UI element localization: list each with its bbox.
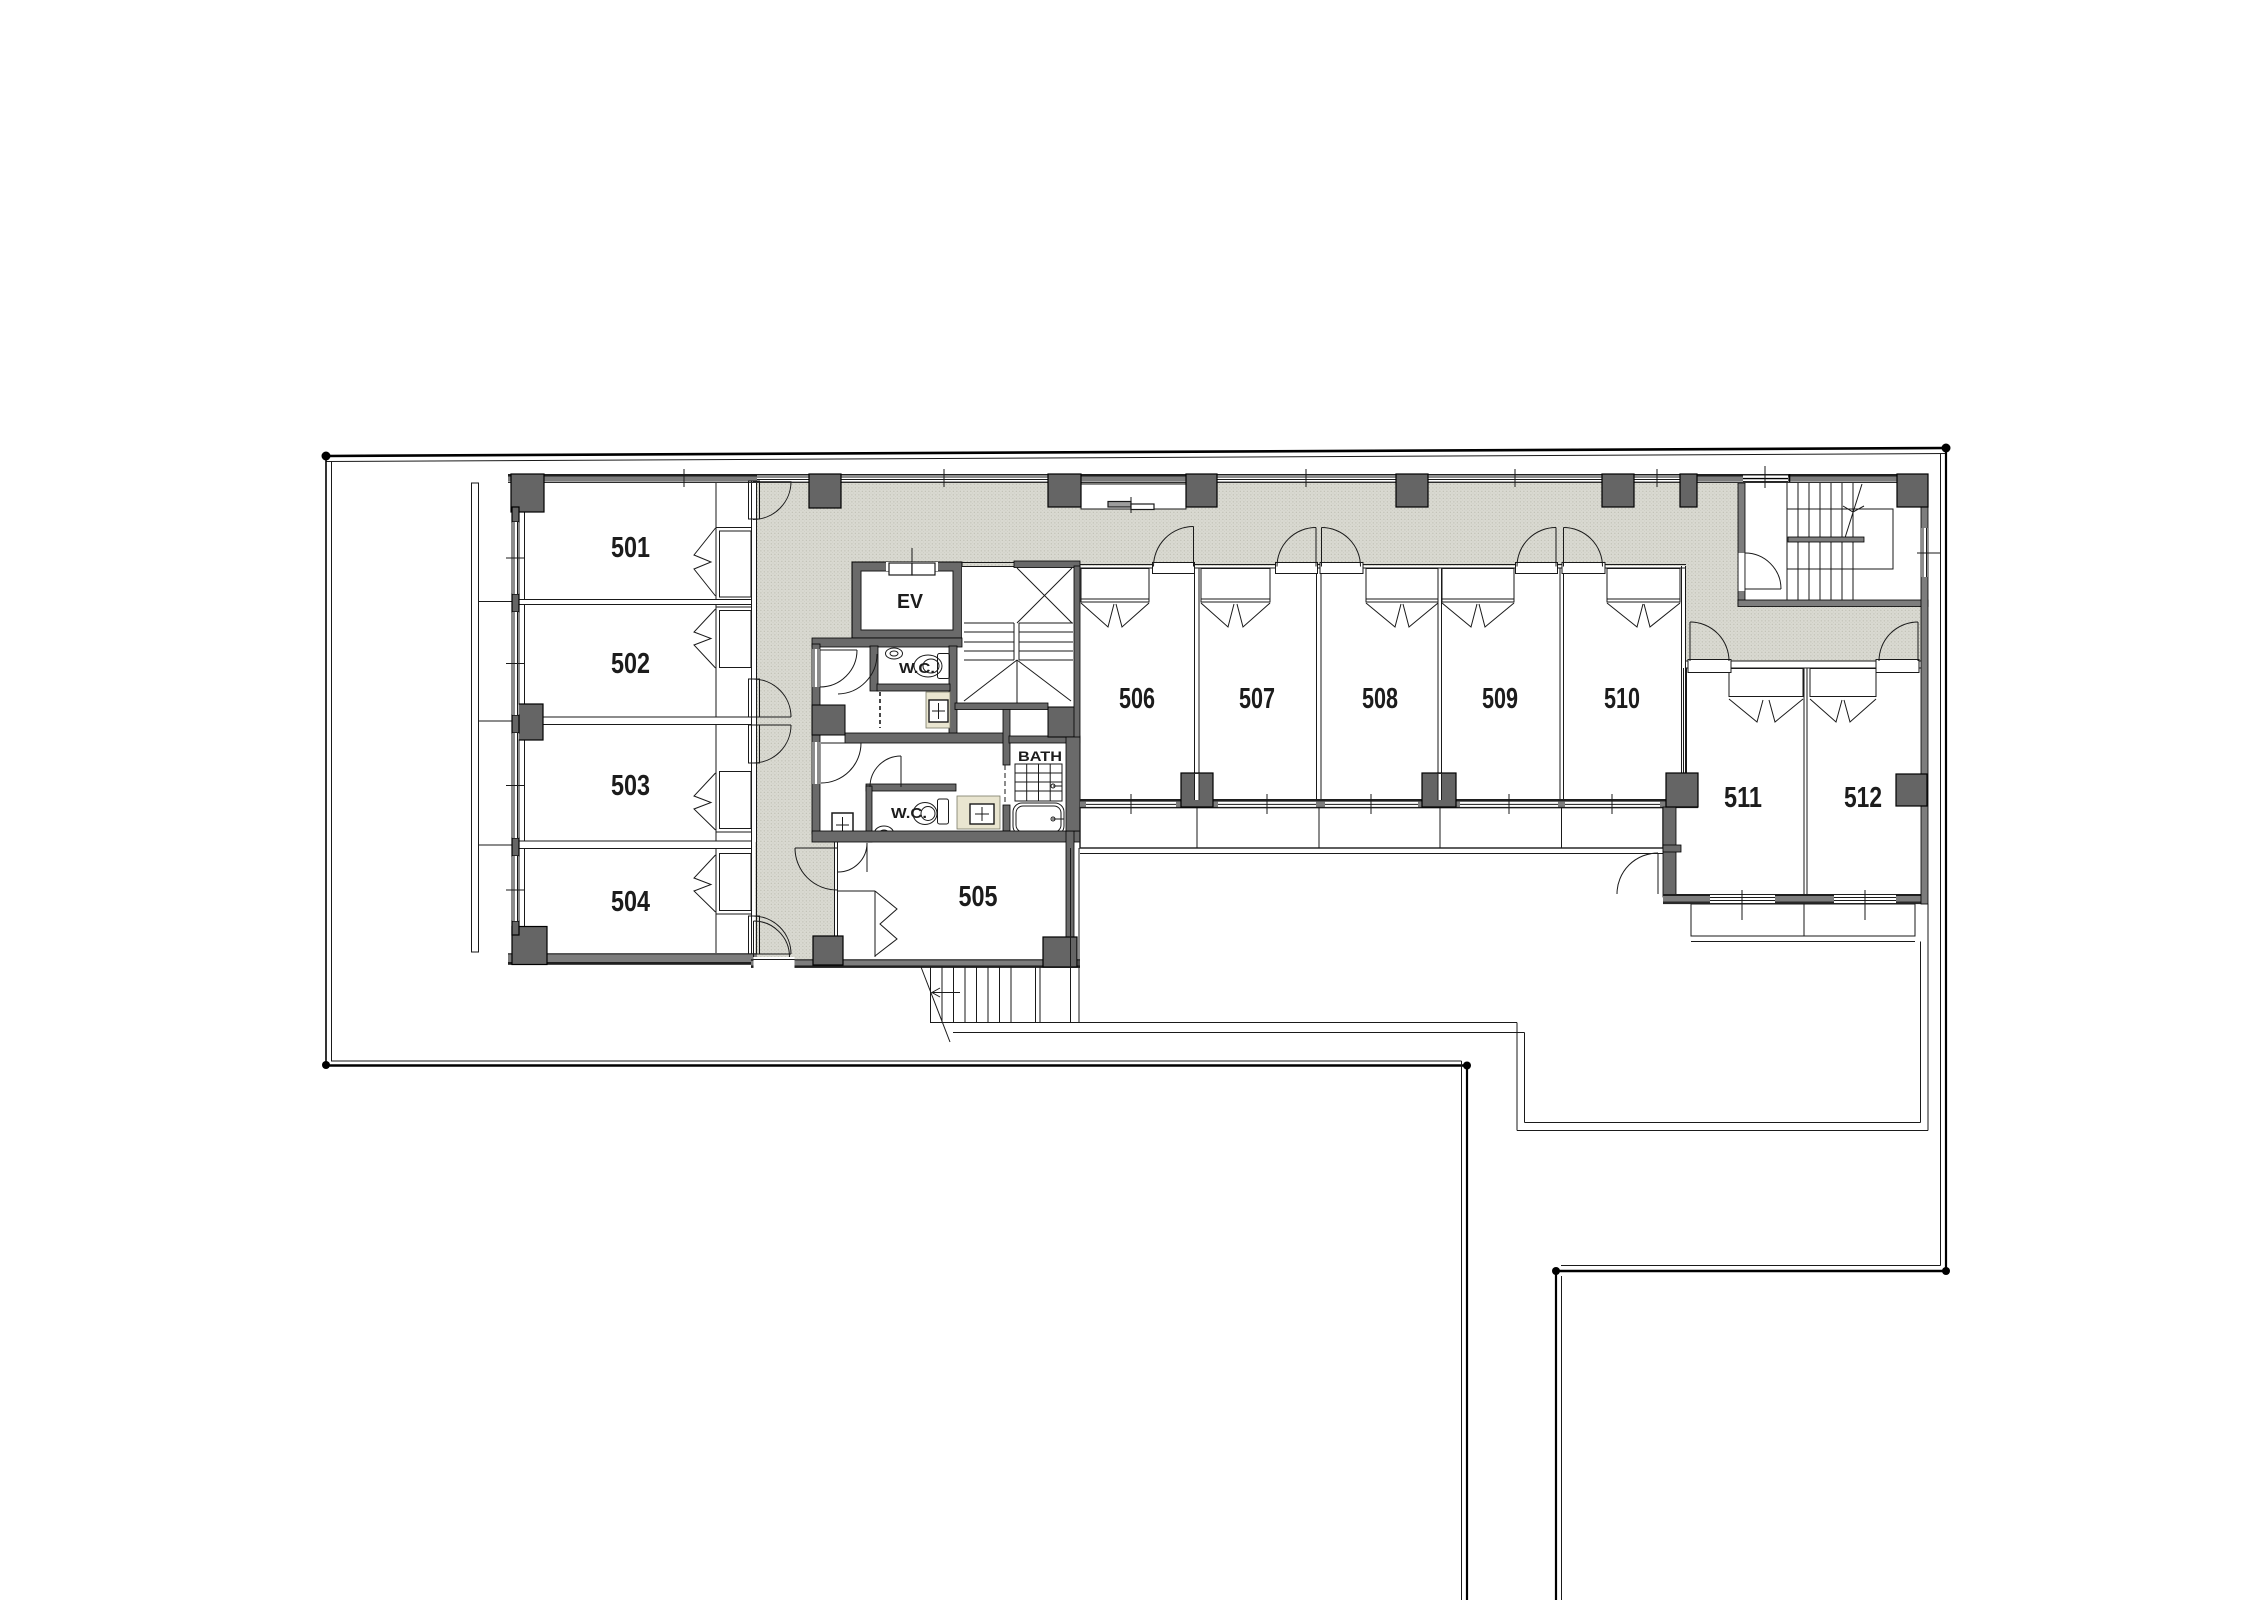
svg-text:504: 504: [611, 886, 650, 918]
svg-text:501: 501: [611, 532, 650, 564]
svg-text:508: 508: [1362, 683, 1398, 715]
svg-text:506: 506: [1119, 683, 1155, 715]
svg-text:510: 510: [1604, 683, 1640, 715]
svg-text:505: 505: [959, 881, 998, 913]
svg-text:503: 503: [611, 770, 650, 802]
svg-text:511: 511: [1724, 782, 1762, 814]
svg-text:W.C.: W.C.: [899, 660, 935, 677]
svg-text:502: 502: [611, 648, 650, 680]
svg-text:507: 507: [1239, 683, 1275, 715]
svg-text:509: 509: [1482, 683, 1518, 715]
svg-text:BATH: BATH: [1018, 748, 1062, 764]
svg-text:W.C.: W.C.: [891, 805, 927, 822]
svg-text:512: 512: [1844, 782, 1882, 814]
svg-text:EV: EV: [897, 591, 924, 613]
